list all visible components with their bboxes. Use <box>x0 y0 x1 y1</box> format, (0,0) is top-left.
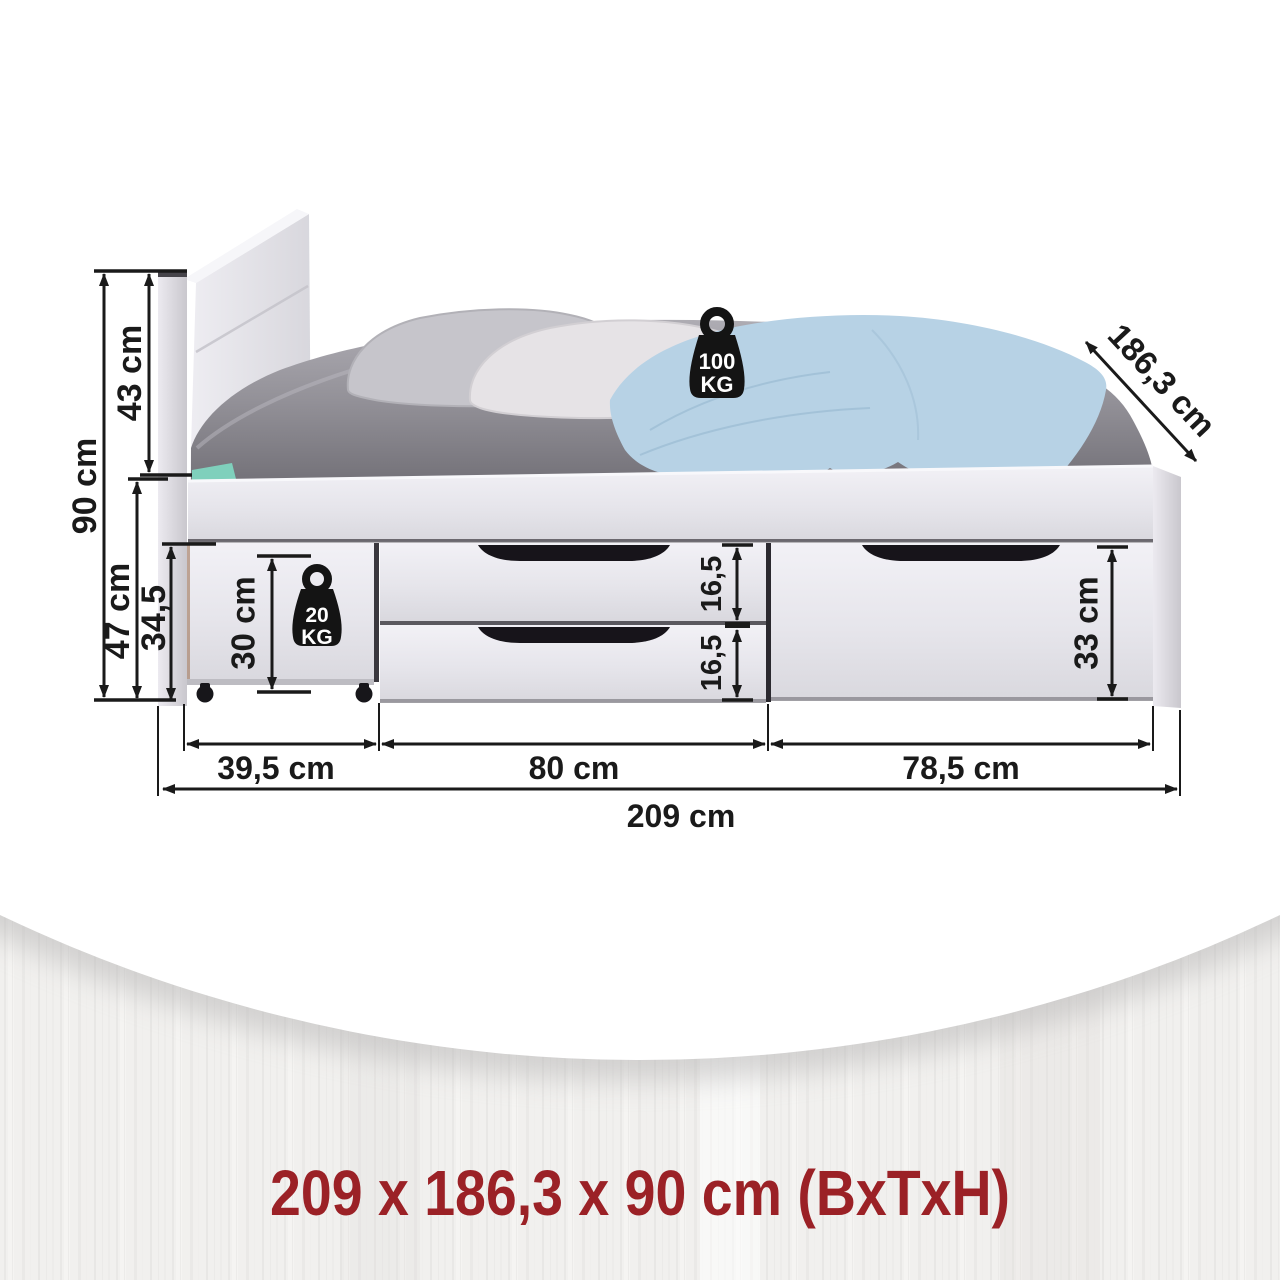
label-total-width: 209 cm <box>627 798 736 834</box>
weight-100-unit: KG <box>701 372 734 397</box>
rollout-drawer-front <box>187 543 374 682</box>
label-middle-drawer-bottom-height: 16,5 <box>696 635 728 691</box>
label-rollout-drawer-width: 39,5 cm <box>217 750 334 786</box>
dimension-summary-text: 209 x 186,3 x 90 cm (BxTxH) <box>270 1157 1010 1229</box>
label-total-height: 90 cm <box>66 438 104 534</box>
label-rollout-inner-height: 30 cm <box>225 576 262 670</box>
drawer-handle-cutout <box>478 545 670 561</box>
label-middle-drawers-width: 80 cm <box>529 750 620 786</box>
right-drawer-bottom-shadow <box>771 697 1153 701</box>
rollout-drawer <box>187 543 379 703</box>
label-headboard-height: 43 cm <box>111 325 149 421</box>
label-right-drawer-width: 78,5 cm <box>902 750 1019 786</box>
bed-dimension-diagram: 100 KG 20 KG 90 cm 43 cm 47 cm 34,5 30 c… <box>0 0 1280 1280</box>
drawer-handle-cutout <box>478 627 670 643</box>
label-base-height: 47 cm <box>99 563 137 659</box>
rollout-drawer-edge <box>187 543 190 682</box>
rollout-drawer-seam <box>374 543 379 682</box>
diagram-canvas: 100 KG 20 KG 90 cm 43 cm 47 cm 34,5 30 c… <box>0 0 1280 1280</box>
bed-frame-rail <box>188 466 1153 543</box>
middle-drawer-seam <box>380 621 766 625</box>
label-middle-drawer-top-height: 16,5 <box>696 556 728 612</box>
footboard-leg <box>1153 466 1181 708</box>
weight-20-unit: KG <box>301 626 333 649</box>
drawer-handle-cutout <box>862 545 1060 561</box>
weight-100-value: 100 <box>699 349 736 374</box>
label-right-drawer-height: 33 cm <box>1068 576 1105 670</box>
rail-bottom-seam <box>188 539 1153 543</box>
weight-20-value: 20 <box>305 604 328 627</box>
rollout-drawer-bottom <box>187 679 374 685</box>
middle-drawer-bottom-shadow <box>380 699 766 703</box>
label-drawer-front-height: 34,5 <box>135 585 173 651</box>
right-drawer-seam <box>766 543 771 702</box>
